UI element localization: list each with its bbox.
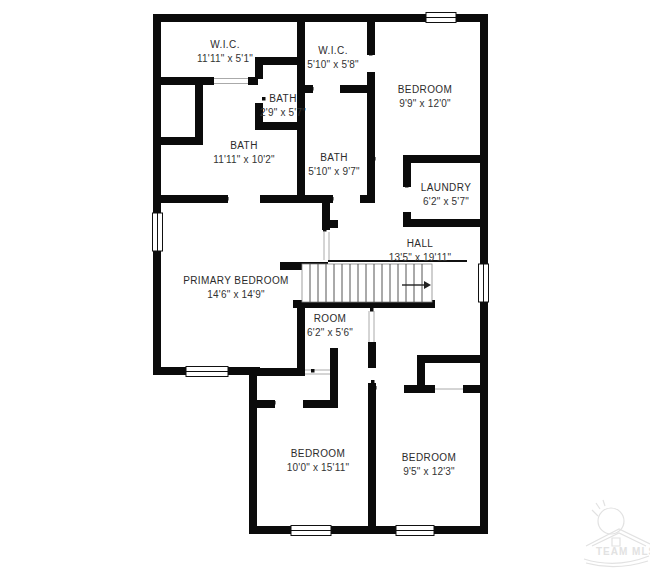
room-dims: 5'10" x 5'8" <box>307 58 359 72</box>
floor-plan-drawing: TEAM MLS <box>0 0 650 570</box>
door-tick-marks <box>210 52 410 405</box>
floor-plan: TEAM MLS W.I.C. 11'11" x 5'1" W.I.C. 5'1… <box>0 0 650 570</box>
room-label-bath-middle: BATH 5'10" x 9'7" <box>308 151 360 179</box>
window-left-primary <box>153 213 163 251</box>
room-dims: 2'9" x 5'7" <box>260 106 306 120</box>
room-dims: 6'2" x 5'7" <box>421 195 471 209</box>
watermark-logo: TEAM MLS <box>584 500 650 567</box>
room-name: BEDROOM <box>402 451 456 465</box>
room-name: HALL <box>389 237 451 251</box>
room-label-wic-left: W.I.C. 11'11" x 5'1" <box>197 38 253 66</box>
room-dims: 13'5" x 19'11" <box>389 251 451 265</box>
window-bottom-right-bedroom <box>396 526 434 536</box>
room-label-laundry: LAUNDRY 6'2" x 5'7" <box>421 181 471 209</box>
room-label-bath-small: BATH 2'9" x 5'7" <box>260 92 306 120</box>
room-label-bedroom-bottom-left: BEDROOM 10'0" x 15'11" <box>287 447 349 475</box>
room-label-bedroom-bottom-right: BEDROOM 9'5" x 12'3" <box>402 451 456 479</box>
room-label-wic-right: W.I.C. 5'10" x 5'8" <box>307 44 359 72</box>
room-dims: 11'11" x 5'1" <box>197 52 253 66</box>
room-name: BEDROOM <box>287 447 349 461</box>
room-dims: 9'9" x 12'0" <box>398 97 452 111</box>
room-dims: 11'11" x 10'2" <box>213 153 275 167</box>
room-label-hall: HALL 13'5" x 19'11" <box>389 237 451 265</box>
room-name: BEDROOM <box>398 83 452 97</box>
room-label-room: ROOM 6'2" x 5'6" <box>307 312 353 340</box>
room-dims: 9'5" x 12'3" <box>402 465 456 479</box>
room-label-bedroom-top: BEDROOM 9'9" x 12'0" <box>398 83 452 111</box>
room-name: PRIMARY BEDROOM <box>183 274 289 288</box>
room-dims: 14'6" x 14'9" <box>183 288 289 302</box>
room-dims: 5'10" x 9'7" <box>308 165 360 179</box>
room-dims: 6'2" x 5'6" <box>307 326 353 340</box>
window-bottom-left-bedroom <box>291 526 331 536</box>
room-name: W.I.C. <box>197 38 253 52</box>
room-name: ROOM <box>307 312 353 326</box>
room-label-primary-bedroom: PRIMARY BEDROOM 14'6" x 14'9" <box>183 274 289 302</box>
staircase <box>302 260 467 302</box>
cased-openings <box>214 79 463 390</box>
window-right-hall <box>479 264 489 302</box>
room-dims: 10'0" x 15'11" <box>287 461 349 475</box>
window-top <box>426 13 456 23</box>
room-name: BATH <box>308 151 360 165</box>
window-primary-bottom <box>186 367 228 377</box>
watermark-text: TEAM MLS <box>596 546 650 557</box>
room-name: LAUNDRY <box>421 181 471 195</box>
room-name: W.I.C. <box>307 44 359 58</box>
room-name: BATH <box>260 92 306 106</box>
room-label-bath-large: BATH 11'11" x 10'2" <box>213 139 275 167</box>
room-name: BATH <box>213 139 275 153</box>
